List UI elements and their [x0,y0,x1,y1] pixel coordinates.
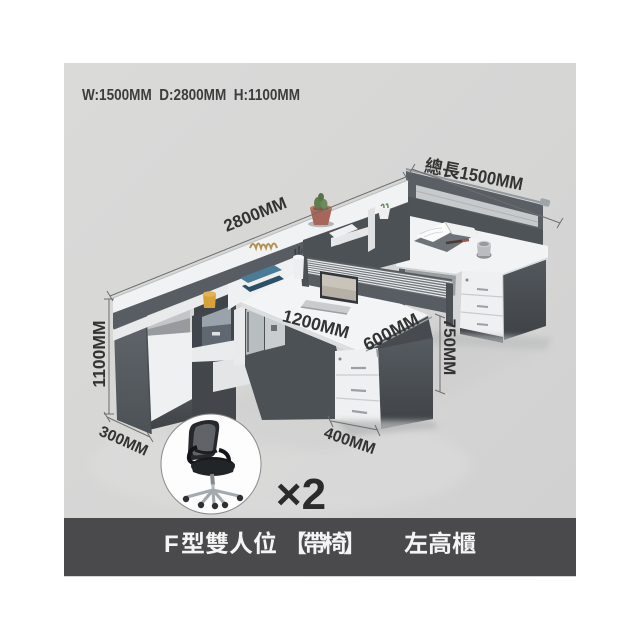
svg-text:×2: ×2 [276,470,326,519]
svg-text:750MM: 750MM [440,319,459,376]
svg-text:1100MM: 1100MM [89,320,109,387]
svg-text:F: F [164,531,179,558]
svg-text:W:1500MM D:2800MM H:1100MM: W:1500MM D:2800MM H:1100MM [82,87,300,104]
